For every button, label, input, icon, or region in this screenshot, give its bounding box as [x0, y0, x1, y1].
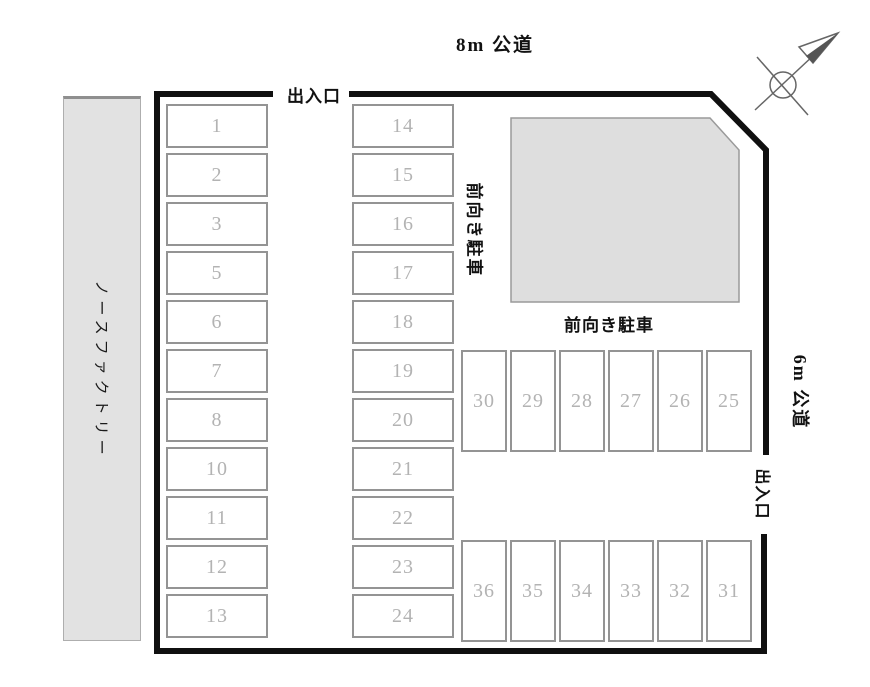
parking-column-middle: 1415161718192021222324 — [352, 104, 454, 638]
entrance-label-right: 出入口 — [752, 468, 776, 519]
parking-space: 11 — [166, 496, 268, 540]
entrance-label-top: 出入口 — [281, 82, 347, 107]
road-label-top: 8m 公道 — [440, 30, 550, 57]
parking-space: 28 — [559, 350, 605, 452]
parking-space: 22 — [352, 496, 454, 540]
parking-column-left: 123567810111213 — [166, 104, 268, 638]
parking-space: 30 — [461, 350, 507, 452]
building-upper-right — [511, 118, 739, 302]
parking-space: 21 — [352, 447, 454, 491]
parking-space: 20 — [352, 398, 454, 442]
parking-space: 35 — [510, 540, 556, 642]
parking-space: 10 — [166, 447, 268, 491]
parking-space: 6 — [166, 300, 268, 344]
parking-space: 24 — [352, 594, 454, 638]
parking-space: 33 — [608, 540, 654, 642]
parking-space: 2 — [166, 153, 268, 197]
parking-space: 26 — [657, 350, 703, 452]
parking-space: 14 — [352, 104, 454, 148]
parking-space: 17 — [352, 251, 454, 295]
parking-space: 23 — [352, 545, 454, 589]
building-left-label: ノースファクトリー — [92, 280, 113, 459]
front-facing-parking-note-vertical: 前向き駐車 — [464, 183, 489, 278]
parking-space: 15 — [352, 153, 454, 197]
parking-lot-map: 8m 公道 6m 公道 出入口 出入口 ノースファクトリー 1235678101… — [0, 0, 870, 687]
parking-space: 34 — [559, 540, 605, 642]
parking-space: 19 — [352, 349, 454, 393]
parking-space: 36 — [461, 540, 507, 642]
compass-north-arrow-icon — [755, 33, 838, 115]
parking-space: 1 — [166, 104, 268, 148]
parking-space: 8 — [166, 398, 268, 442]
parking-space: 25 — [706, 350, 752, 452]
parking-row-lower: 363534333231 — [461, 540, 752, 642]
parking-space: 13 — [166, 594, 268, 638]
parking-row-upper: 302928272625 — [461, 350, 752, 452]
road-label-right: 6m 公道 — [788, 355, 814, 430]
parking-space: 31 — [706, 540, 752, 642]
parking-space: 29 — [510, 350, 556, 452]
parking-space: 32 — [657, 540, 703, 642]
front-facing-parking-note-horizontal: 前向き駐車 — [563, 311, 655, 336]
parking-space: 18 — [352, 300, 454, 344]
parking-space: 12 — [166, 545, 268, 589]
parking-space: 3 — [166, 202, 268, 246]
parking-space: 5 — [166, 251, 268, 295]
building-left: ノースファクトリー — [63, 96, 141, 641]
parking-space: 7 — [166, 349, 268, 393]
parking-space: 16 — [352, 202, 454, 246]
parking-space: 27 — [608, 350, 654, 452]
